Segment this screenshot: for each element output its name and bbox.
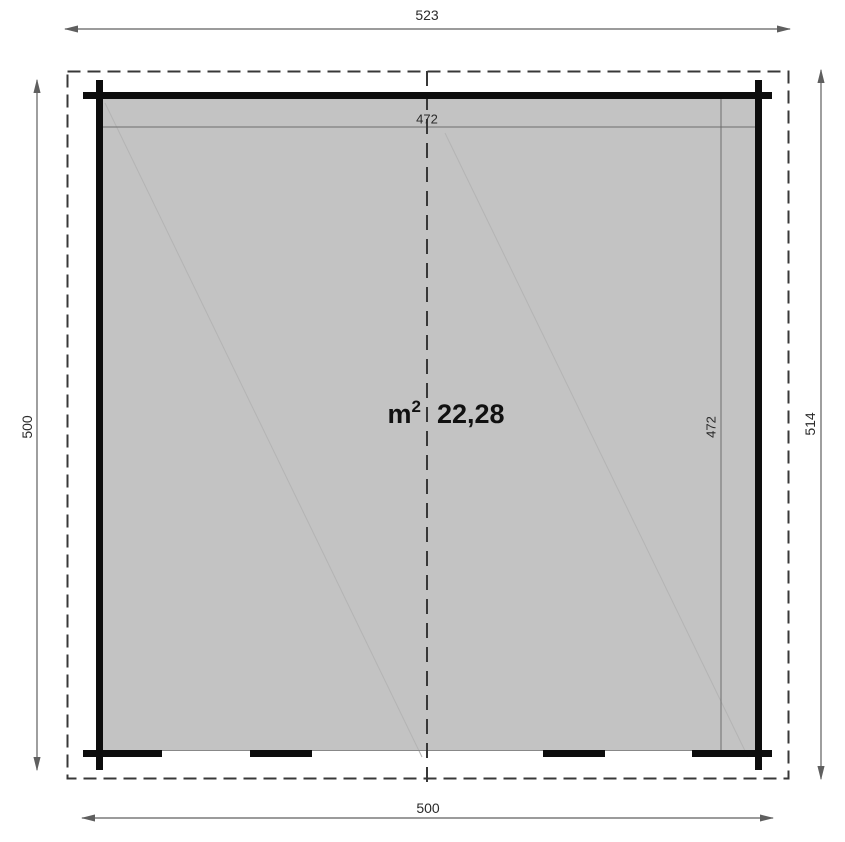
dimension-label-right-height: 514: [803, 412, 817, 435]
wall-left: [96, 80, 103, 770]
dimension-label-left-height: 500: [20, 415, 34, 438]
dimension-label-top-width: 523: [415, 8, 438, 22]
wall-right: [755, 80, 762, 770]
wall-top: [83, 92, 772, 99]
floor-plan-canvas: 523 472 500 514 472 500 m2 22,28: [0, 0, 845, 842]
area-unit-base: m: [388, 399, 412, 429]
wall-bottom-segment-3: [543, 750, 605, 757]
area-value-label: 22,28: [437, 401, 505, 428]
dimension-label-interior-height: 472: [705, 416, 718, 438]
dimension-label-bottom-width: 500: [416, 801, 439, 815]
wall-bottom-segment-4: [692, 750, 772, 757]
wall-bottom-segment-2: [250, 750, 312, 757]
wall-bottom-segment-1: [83, 750, 162, 757]
area-unit-label: m2: [388, 401, 421, 428]
floor-area: [103, 99, 755, 750]
area-unit-exponent: 2: [412, 397, 421, 416]
dimension-label-interior-width: 472: [416, 113, 438, 126]
